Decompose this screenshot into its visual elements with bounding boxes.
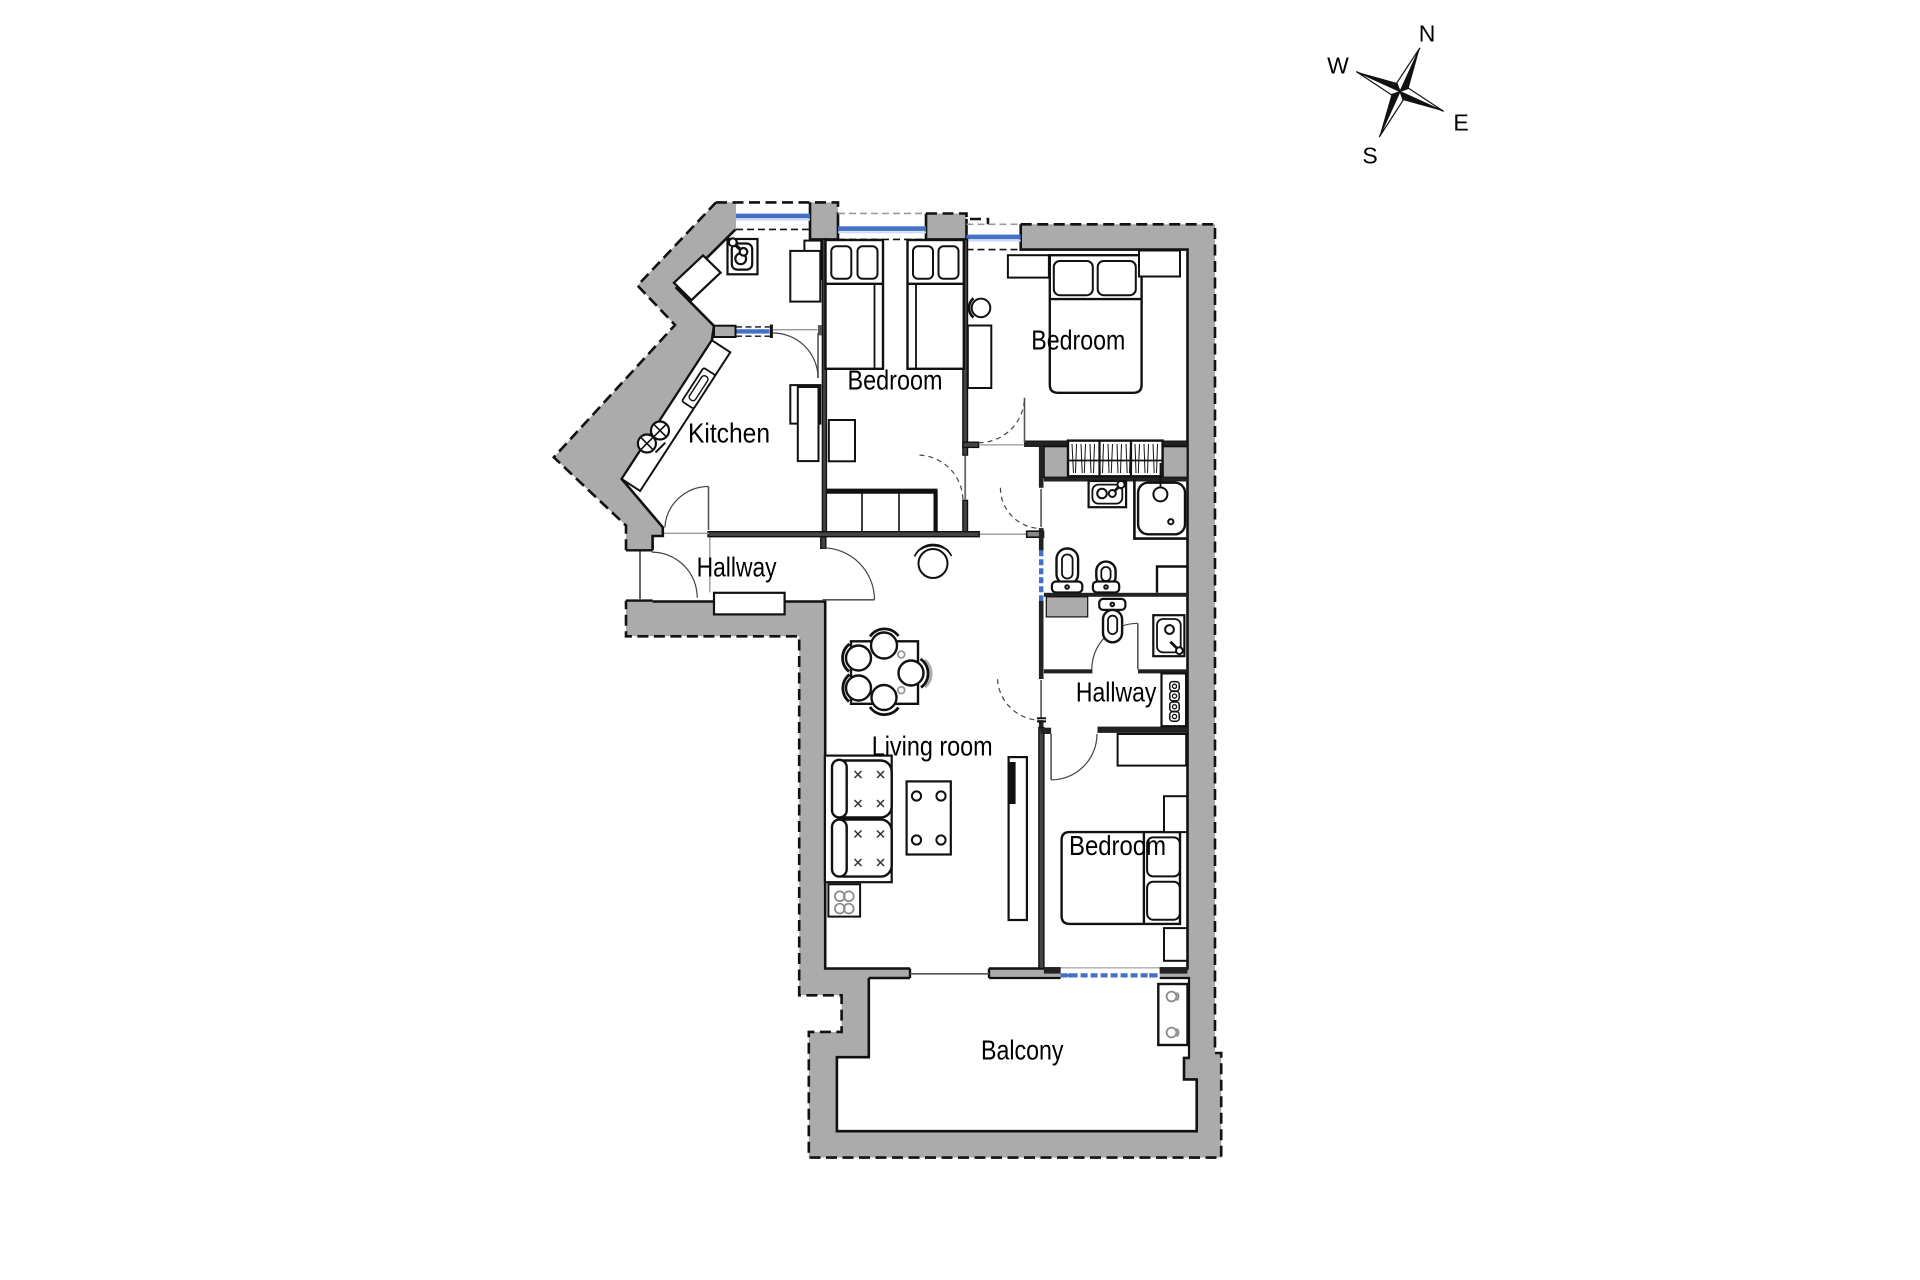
svg-text:E: E [1453, 110, 1468, 136]
svg-text:Bedroom: Bedroom [848, 365, 943, 396]
svg-text:Hallway: Hallway [697, 552, 777, 583]
svg-text:Bedroom: Bedroom [1031, 325, 1125, 356]
svg-text:Living room: Living room [872, 731, 993, 762]
svg-text:Bedroom: Bedroom [1069, 830, 1166, 861]
svg-text:Balcony: Balcony [981, 1035, 1064, 1066]
svg-text:Kitchen: Kitchen [688, 417, 770, 448]
svg-text:W: W [1327, 53, 1349, 79]
svg-text:Hallway: Hallway [1076, 676, 1157, 707]
svg-text:N: N [1419, 21, 1436, 47]
svg-text:S: S [1362, 143, 1377, 169]
